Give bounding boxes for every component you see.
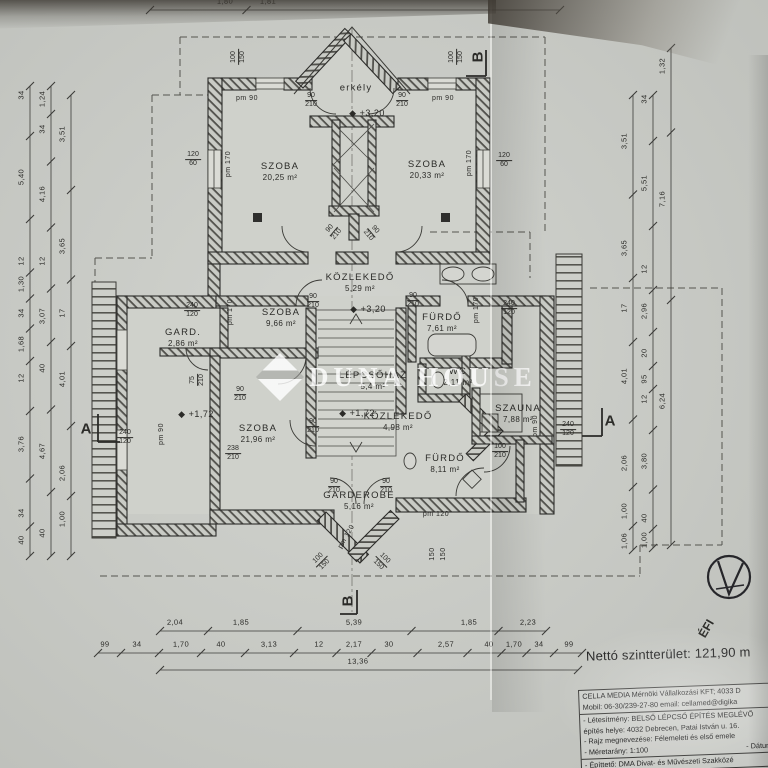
dim-label: 6,24 [659, 393, 668, 409]
dim-label: 99 [100, 641, 109, 650]
dim-label: 1,00 [59, 511, 68, 527]
dim-tag: 90210 [305, 418, 321, 436]
room-label: erkély [340, 84, 373, 95]
level-mark: ◆ +3,20 [349, 108, 385, 118]
dim-label: 2,06 [59, 465, 68, 481]
dim-label: 34 [18, 308, 27, 317]
dim-label: 1,30 [18, 276, 27, 292]
dim-label: 12 [18, 256, 27, 265]
dim-tag: pm 170 [225, 151, 233, 177]
title-block: CELLA MEDIA Mérnöki Vállalkozási KFT; 40… [578, 682, 768, 768]
dim-label: 5,39 [346, 618, 362, 627]
dim-label: 3,51 [59, 126, 68, 142]
dim-label: 2,57 [438, 640, 454, 649]
dim-tag: 90210 [405, 292, 421, 310]
dim-tag: pm 90 [532, 415, 540, 437]
room-label: SZOBA21,96 m² [239, 424, 277, 444]
room-label: SZOBA9,66 m² [262, 308, 300, 328]
dim-tag: 100150 [448, 49, 466, 65]
dim-label: 1,00 [641, 532, 650, 548]
dim-label: 4,16 [39, 186, 48, 202]
dim-label: 4,01 [59, 371, 68, 387]
dim-tag: 150 [440, 547, 448, 560]
dim-tag: 100150 [230, 49, 248, 65]
dim-label: 1,85 [233, 618, 249, 627]
dim-label: 1,24 [39, 91, 48, 107]
dim-tag: 90210 [394, 92, 410, 110]
dim-tag: 150 [429, 547, 437, 560]
dim-label: 40 [216, 641, 225, 650]
dim-label: 1,70 [173, 640, 189, 649]
dim-tag: 90210 [303, 92, 319, 110]
level-mark: ◆ +1,72 [339, 408, 375, 418]
dim-label: 2,04 [167, 618, 183, 627]
level-mark: ◆ +1,72 [178, 409, 214, 419]
dim-label: 3,65 [621, 240, 630, 256]
dim-label: 1,68 [18, 336, 27, 352]
dim-tag: 75210 [189, 372, 207, 388]
room-label: GARD.2,86 m² [165, 328, 201, 348]
dim-tag: pm 120 [423, 511, 449, 519]
dim-label: 12 [314, 641, 323, 650]
dim-label: 4,01 [621, 368, 630, 384]
room-label: SZOBA20,25 m² [261, 162, 299, 182]
dim-label: 13,36 [348, 657, 369, 666]
dim-label: 5,40 [18, 169, 27, 185]
dim-label: 1,32 [659, 58, 668, 74]
dim-label: 3,51 [621, 133, 630, 149]
dim-label: 34 [18, 90, 27, 99]
dim-label: 30 [384, 641, 393, 650]
room-label: FÜRDŐ7,61 m² [422, 313, 462, 333]
dim-tag: 12060 [496, 152, 512, 170]
dim-label: 34 [39, 124, 48, 133]
dim-label: 2,23 [520, 618, 536, 627]
dim-tag: 240120 [117, 429, 133, 447]
dim-label: 20 [641, 348, 650, 357]
dim-label: 34 [18, 508, 27, 517]
dim-label: 12 [641, 264, 650, 273]
dim-tag: pm 170 [466, 150, 474, 176]
dim-tag: 240120 [501, 300, 517, 318]
section-marker-b-bottom: B [339, 596, 356, 607]
drawing-date: - Dátum: 2 [746, 740, 768, 752]
dim-label: 17 [59, 308, 68, 317]
section-marker-b-top: B [469, 52, 486, 63]
dim-tag: 90210 [232, 386, 248, 404]
dim-tag: 12060 [185, 151, 201, 169]
dim-label: 40 [39, 528, 48, 537]
dim-label: 1,80 [217, 0, 233, 7]
level-mark: ◆ +3,20 [350, 304, 386, 314]
dim-label: 34 [641, 94, 650, 103]
room-label: WC2,11 m² [443, 367, 472, 387]
dim-tag: 240120 [184, 302, 200, 320]
dim-label: 1,85 [461, 618, 477, 627]
dim-label: 95 [641, 374, 650, 383]
north-symbol-icon [708, 556, 750, 598]
dim-tag: pm 90 [158, 423, 166, 445]
dim-label: 7,16 [659, 191, 668, 207]
dim-tag: pm 90 [236, 95, 258, 103]
room-label: LÉPCSŐHÁZ5,4 m² [339, 371, 407, 391]
dim-tag: 240120 [560, 421, 576, 439]
dim-tag: pm 170 [473, 297, 481, 323]
dim-label: 1,00 [621, 503, 630, 519]
title-block-project-section: - Létesítmény: BELSŐ LÉPCSŐ ÉPÍTÉS MEGLÉ… [580, 707, 768, 760]
dim-label: 1,70 [506, 640, 522, 649]
dim-label: 2,17 [346, 640, 362, 649]
room-label: FÜRDŐ8,11 m² [425, 454, 465, 474]
dim-label: 3,07 [39, 308, 48, 324]
dim-tag: pm 90 [432, 95, 454, 103]
dim-tag: 100210 [492, 443, 508, 461]
dim-label: 40 [18, 535, 27, 544]
section-marker-a-left: A [81, 420, 92, 437]
dim-label: 2,06 [621, 455, 630, 471]
room-label: KÖZLEKEDŐ5,29 m² [326, 273, 395, 293]
dim-label: 4,67 [39, 443, 48, 459]
dim-tag: 90210 [326, 478, 342, 496]
section-marker-a-right: A [605, 412, 616, 429]
drawing-scale: - Méretarány: 1:100 [584, 745, 648, 758]
dim-label: 34 [132, 641, 141, 650]
dim-label: 1,81 [260, 0, 276, 7]
dim-tag: 90210 [378, 478, 394, 496]
dim-label: 17 [621, 303, 630, 312]
dim-label: 12 [641, 394, 650, 403]
dim-label: 3,80 [641, 453, 650, 469]
dim-label: 1,06 [621, 533, 630, 549]
dim-label: 40 [641, 513, 650, 522]
dim-label: 5,51 [641, 175, 650, 191]
dim-label: 12 [39, 256, 48, 265]
dim-label: 99 [564, 641, 573, 650]
dim-label: 3,13 [261, 640, 277, 649]
dim-tag: 90210 [305, 293, 321, 311]
dim-tag: 238210 [225, 445, 241, 463]
dim-label: 3,76 [18, 436, 27, 452]
dim-label: 3,65 [59, 238, 68, 254]
scanned-floor-plan-page: erkélySZOBA20,25 m²SZOBA20,33 m²KÖZLEKED… [0, 0, 768, 768]
dim-label: 40 [39, 363, 48, 372]
dim-tag: pm 170 [227, 299, 235, 325]
dim-label: 12 [18, 373, 27, 382]
dim-label: 40 [484, 641, 493, 650]
room-label: SZOBA20,33 m² [408, 160, 446, 180]
dim-label: 2,96 [641, 303, 650, 319]
dim-label: 34 [534, 641, 543, 650]
